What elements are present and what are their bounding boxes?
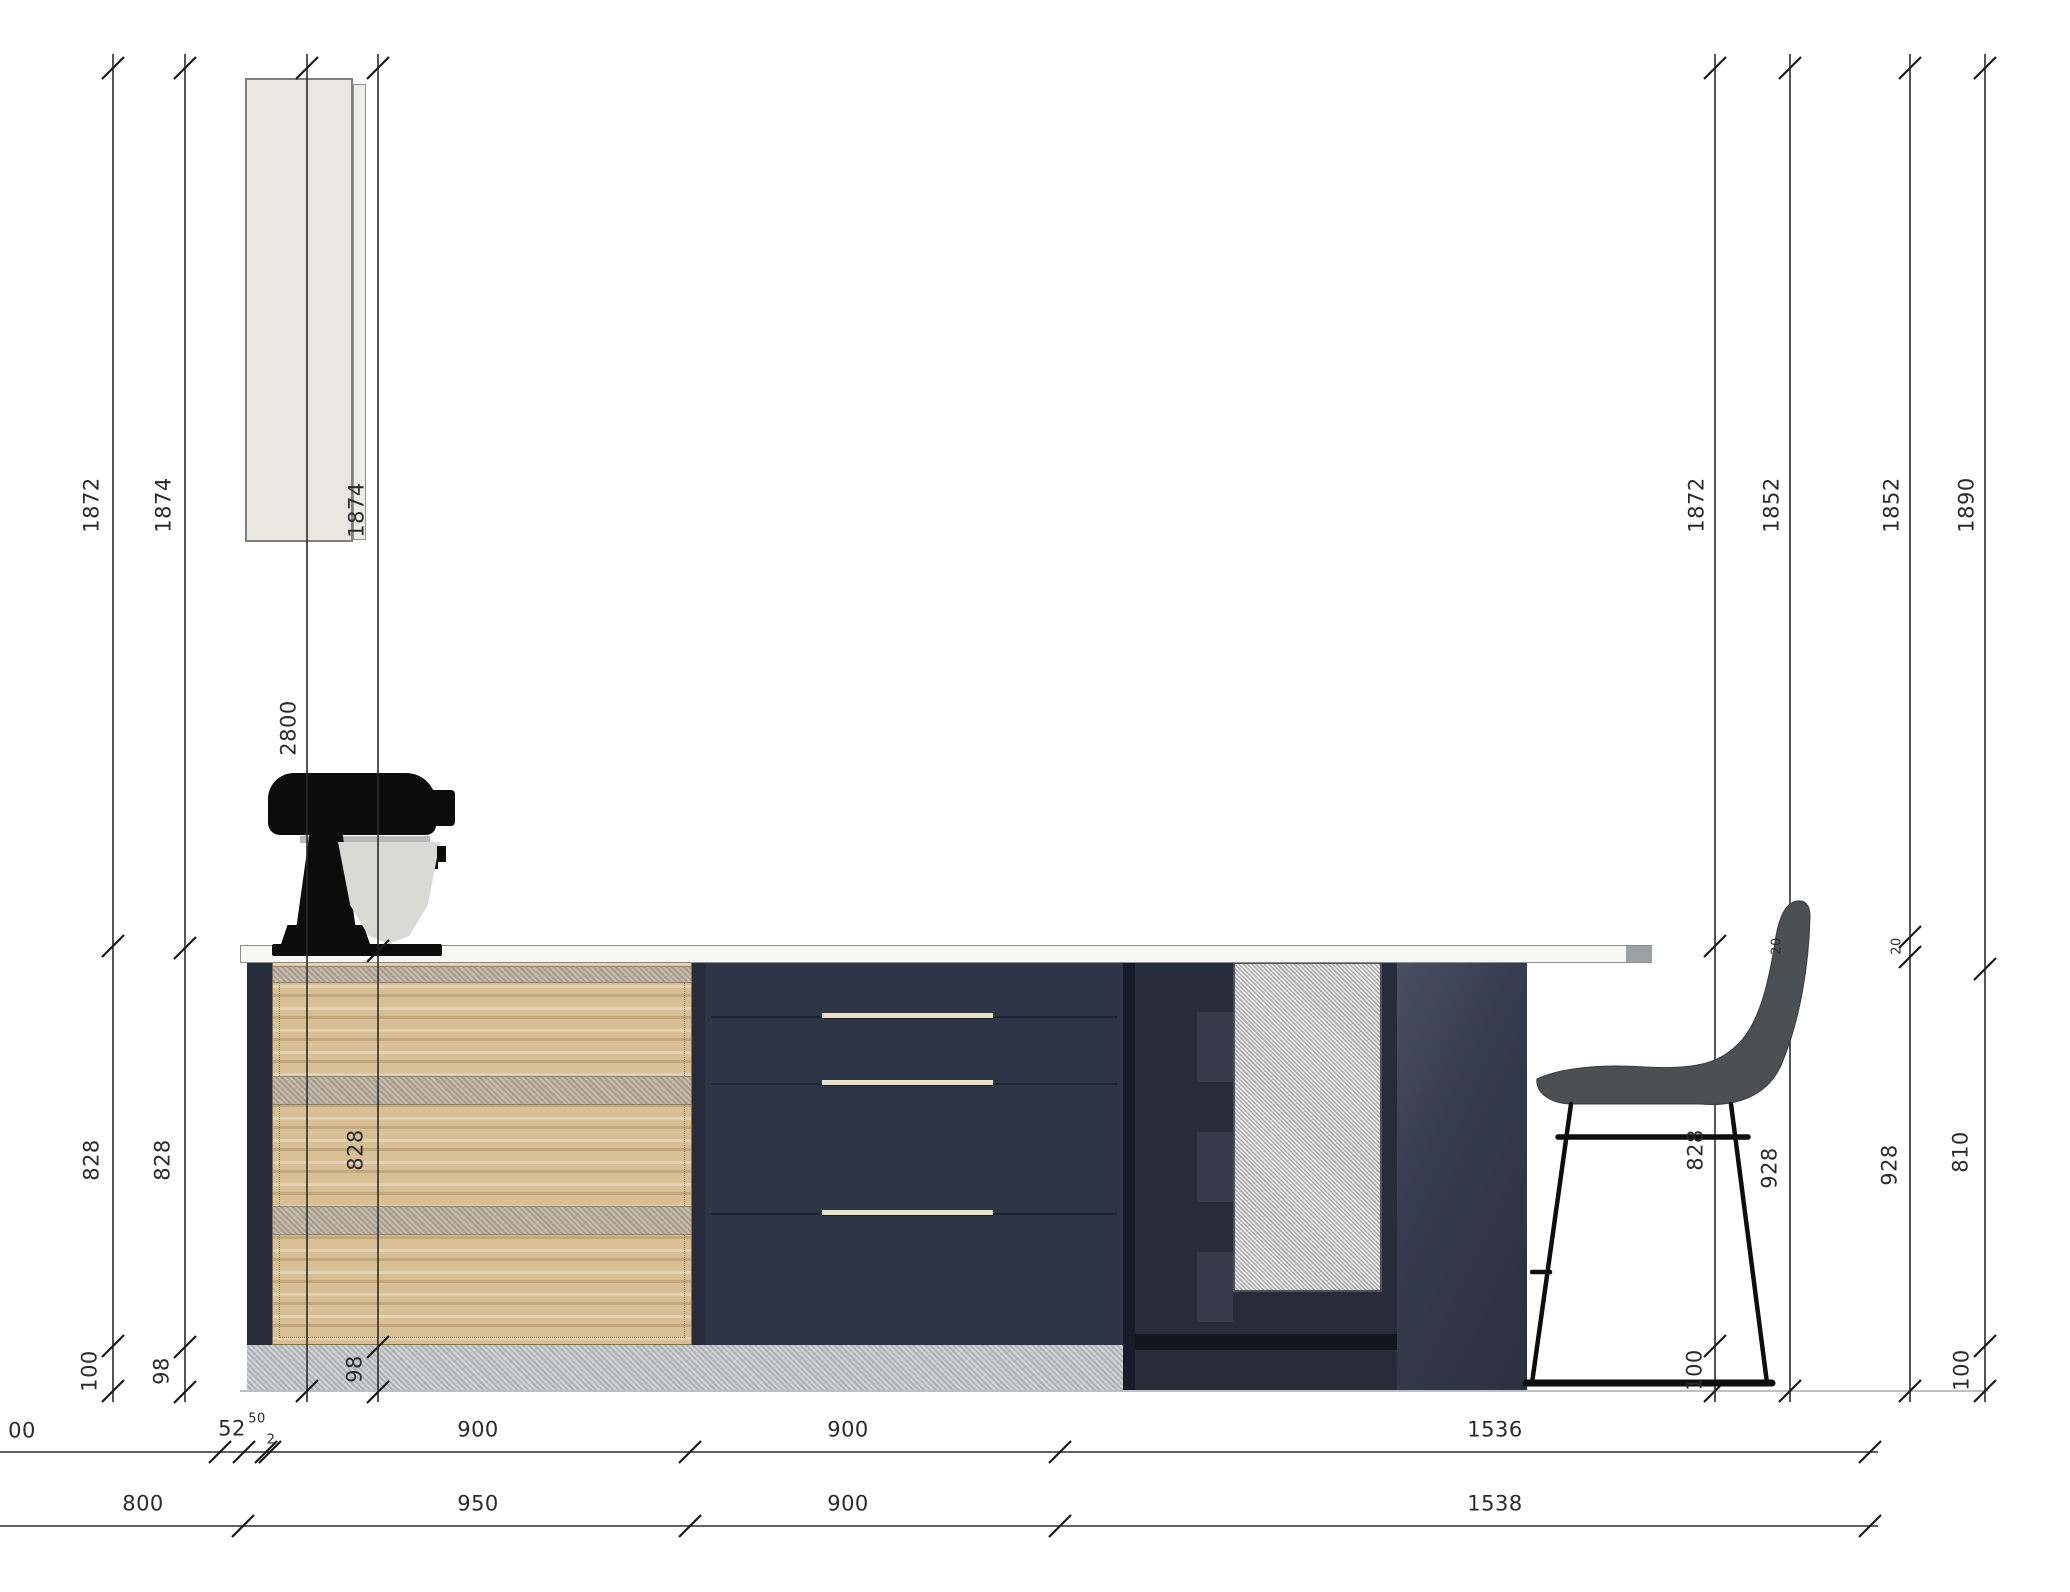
door-bottom-rail bbox=[1135, 1334, 1397, 1350]
wood-hatch-band-2 bbox=[273, 1206, 691, 1235]
elevation-drawing: 1872 828 100 1874 828 98 2800 1874 828 9… bbox=[0, 0, 2070, 1592]
dim-label: 1872 bbox=[82, 477, 103, 532]
dim-label: 20 bbox=[1771, 937, 1784, 955]
dim-label: 900 bbox=[827, 1494, 869, 1515]
stool-shell bbox=[1537, 901, 1810, 1105]
countertop-end-cap bbox=[1626, 946, 1652, 962]
dim-label: 100 bbox=[1952, 1349, 1973, 1391]
dim-label: 2 bbox=[267, 1434, 276, 1447]
mixer-head bbox=[268, 773, 436, 835]
drawer-handle bbox=[822, 1210, 993, 1215]
shelf-hint bbox=[1197, 1012, 1233, 1082]
dim-label: 950 bbox=[457, 1494, 499, 1515]
drawer-handle bbox=[822, 1013, 993, 1018]
dim-label: 1874 bbox=[347, 482, 368, 537]
mesh-door-panel bbox=[1233, 962, 1382, 1292]
dim-label: 00 bbox=[8, 1421, 36, 1442]
dim-label: 1872 bbox=[1687, 477, 1708, 532]
wood-hatch-strip-top bbox=[273, 966, 691, 983]
dim-label: 1852 bbox=[1762, 477, 1783, 532]
wall-cabinet-side-panel bbox=[353, 84, 366, 540]
stool-rear-leg bbox=[1731, 1104, 1767, 1383]
wood-stitch-detail bbox=[279, 969, 685, 1338]
dim-label: 98 bbox=[152, 1357, 173, 1385]
wood-hatch-band-1 bbox=[273, 1076, 691, 1105]
island-left-end-panel bbox=[247, 962, 272, 1347]
shelf-hint bbox=[1197, 1132, 1233, 1202]
dim-label: 828 bbox=[1686, 1129, 1707, 1171]
dim-label: 900 bbox=[457, 1420, 499, 1441]
dim-label: 20 bbox=[1891, 937, 1904, 955]
dim-label: 928 bbox=[1880, 1144, 1901, 1186]
mesh-door-cabinet bbox=[1135, 958, 1397, 1390]
dim-label: 98 bbox=[345, 1355, 366, 1383]
dim-label: 828 bbox=[153, 1139, 174, 1181]
shelf-hint bbox=[1197, 1252, 1233, 1322]
countertop bbox=[240, 945, 1652, 963]
drawer-handle bbox=[822, 1080, 993, 1085]
dim-label: 828 bbox=[346, 1129, 367, 1171]
dim-label: 800 bbox=[122, 1494, 164, 1515]
dim-label: 52 bbox=[218, 1419, 246, 1440]
dim-label: 828 bbox=[82, 1139, 103, 1181]
plinth bbox=[247, 1345, 1123, 1390]
mixer-bowl-handle bbox=[437, 846, 446, 862]
dim-label: 1890 bbox=[1957, 477, 1978, 532]
mixer-base-plate bbox=[272, 944, 442, 956]
dim-label: 50 bbox=[248, 1413, 266, 1426]
dim-label: 1852 bbox=[1882, 477, 1903, 532]
dim-label: 2800 bbox=[279, 700, 300, 755]
dim-label: 900 bbox=[827, 1420, 869, 1441]
wall-cabinet bbox=[245, 78, 353, 542]
dim-label: 1536 bbox=[1467, 1420, 1522, 1441]
dim-label: 928 bbox=[1760, 1147, 1781, 1189]
dim-label: 1538 bbox=[1467, 1494, 1522, 1515]
drawer-stack bbox=[705, 962, 1123, 1345]
island-right-end-panel bbox=[1397, 958, 1527, 1390]
stool-front-leg bbox=[1532, 1104, 1571, 1383]
mixer-head-nose bbox=[425, 790, 455, 826]
dim-label: 100 bbox=[80, 1350, 101, 1392]
dim-label: 810 bbox=[1951, 1131, 1972, 1173]
dim-label: 1874 bbox=[154, 477, 175, 532]
dim-label: 100 bbox=[1685, 1349, 1706, 1391]
wood-drawer-front bbox=[272, 962, 692, 1345]
cabinet-gap-filler bbox=[692, 962, 705, 1345]
section-divider bbox=[1123, 958, 1135, 1390]
